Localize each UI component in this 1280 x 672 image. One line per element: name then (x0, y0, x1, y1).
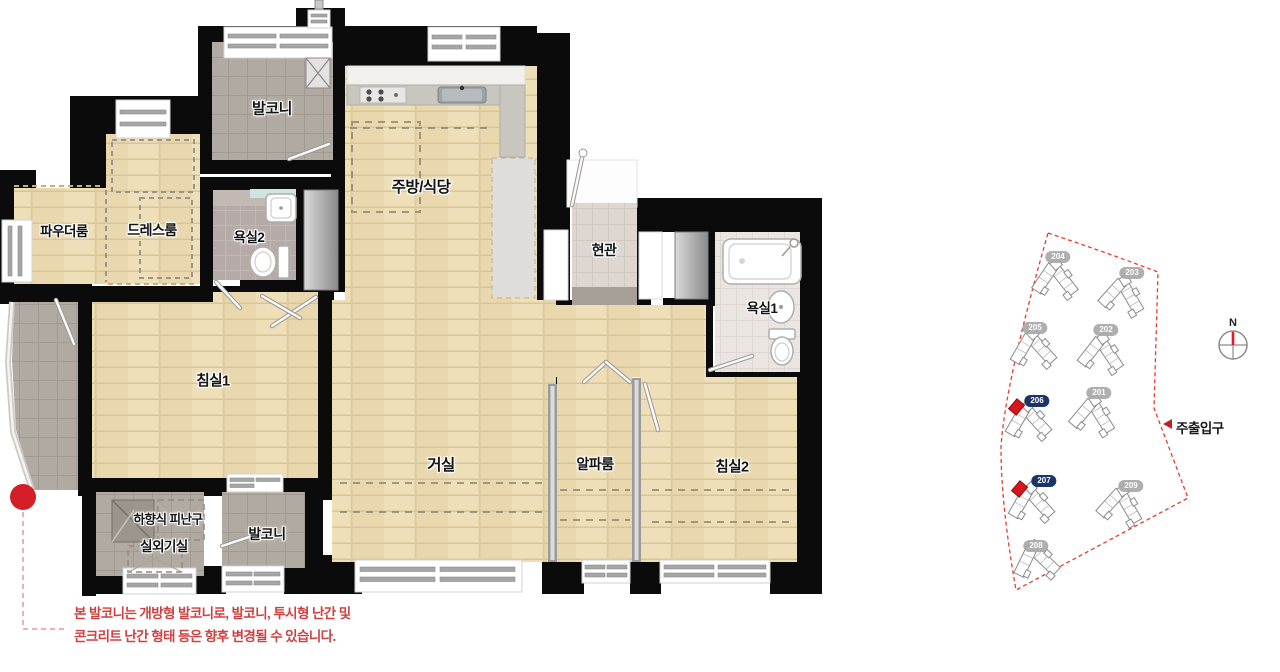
building-badge-209: 209 (1118, 480, 1143, 492)
building-badge-207: 207 (1031, 475, 1056, 487)
bathroom2-sink-icon (266, 194, 296, 222)
window-topleft (116, 100, 170, 138)
building-badge-203: 203 (1119, 267, 1144, 279)
entrance-mat (572, 287, 637, 305)
floorplan-page: 발코니 주방/식당 파우더룸 드레스룸 욕실2 현관 욕실1 침실1 거실 알파… (0, 0, 1280, 672)
compass-north-label: N (1229, 317, 1237, 329)
window-left (2, 220, 32, 282)
marker-leader-line (23, 512, 68, 629)
hall-floor (556, 305, 706, 377)
main-entrance-label: 주출입구 (1176, 417, 1224, 437)
window-living-bottom (355, 560, 522, 592)
room-label-dress-room: 드레스룸 (127, 220, 177, 240)
room-label-living-room: 거실 (427, 453, 455, 475)
balcony-box-icon (306, 58, 330, 88)
room-label-balcony-bottom: 발코니 (248, 524, 285, 544)
entrance-niche-left (544, 230, 568, 300)
window-alpha-bottom (582, 560, 630, 583)
compass-icon (1219, 331, 1247, 359)
balcony-marker-dot (10, 484, 36, 510)
main-entrance-arrow-icon (1163, 419, 1172, 429)
vent-stack-icon (308, 0, 330, 28)
room-label-bathroom2: 욕실2 (234, 226, 265, 246)
living-floor (332, 300, 556, 562)
window-bedroom2-bottom (660, 560, 770, 583)
stove-icon (360, 87, 406, 103)
building-badge-206: 206 (1024, 395, 1049, 407)
kitchen-sink-icon (438, 86, 486, 103)
room-label-entrance: 현관 (592, 240, 617, 260)
room-label-bathroom1: 욕실1 (747, 297, 778, 317)
wardrobe-cabinet (304, 190, 338, 290)
building-badge-205: 205 (1022, 322, 1047, 334)
balcony-notice-line2: 콘크리트 난간 형태 등은 향후 변경될 수 있습니다. (74, 625, 351, 648)
floor-plan-svg (0, 0, 1280, 672)
room-label-outdoor-unit: 실외기실 (140, 535, 188, 555)
kitchen-cabinet (347, 66, 525, 86)
siteplan (1001, 233, 1247, 590)
window-balcony-bottom-bottom (222, 566, 284, 592)
entrance-closet (675, 232, 708, 299)
building-badge-201: 201 (1086, 387, 1111, 399)
room-label-alpha-room: 알파룸 (576, 454, 613, 474)
building-badge-208: 208 (1023, 540, 1048, 552)
room-label-evac-hatch: 하향식 피난구 (134, 509, 203, 528)
building-202 (1076, 330, 1130, 376)
room-label-bedroom1: 침실1 (196, 370, 229, 391)
bathtub-icon (723, 239, 801, 284)
window-balcony-top (224, 27, 332, 58)
building-badge-202: 202 (1093, 324, 1118, 336)
bathroom2-toilet-icon (250, 246, 289, 278)
balcony-notice-line1: 본 발코니는 개방형 발코니로, 발코니, 투시형 난간 및 (74, 602, 351, 625)
building-badge-204: 204 (1045, 251, 1070, 263)
bathroom1-toilet-icon (769, 329, 795, 365)
dress-floor (106, 134, 200, 284)
pantry-cabinet (492, 158, 535, 298)
room-label-bedroom2: 침실2 (715, 456, 748, 477)
room-label-balcony-top: 발코니 (252, 98, 292, 119)
room-label-kitchen-dining: 주방/식당 (392, 175, 451, 197)
entrance-niche-right (639, 232, 662, 299)
window-balcony-bottom-top (227, 474, 283, 492)
balcony-notice: 본 발코니는 개방형 발코니로, 발코니, 투시형 난간 및 콘크리트 난간 형… (74, 602, 351, 648)
room-label-powder-room: 파우더룸 (40, 220, 88, 240)
window-kitchen (428, 27, 500, 61)
